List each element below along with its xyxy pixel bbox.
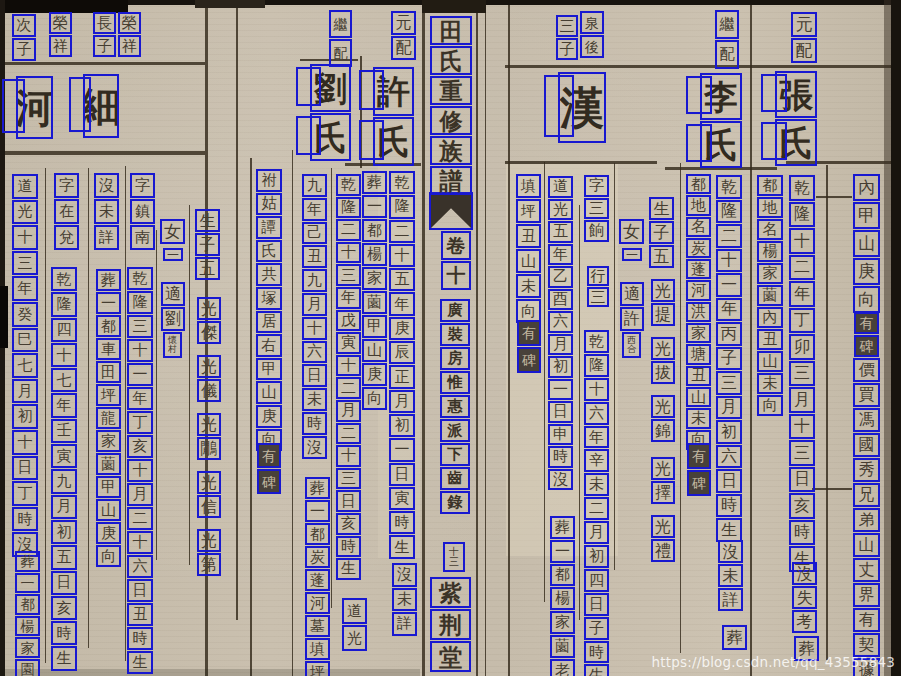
ocr-char-box: 填 xyxy=(305,638,330,660)
ocr-char-box: 初 xyxy=(548,356,573,378)
ocr-char-box: 十 xyxy=(716,249,742,273)
ocr-char-box: 十 xyxy=(127,531,153,554)
ocr-char-box: 惠 xyxy=(440,395,470,418)
ocr-column-han-name: 漢 xyxy=(558,72,606,143)
ocr-char-box: 長 xyxy=(93,12,116,34)
ocr-char-box: 沒 xyxy=(792,562,817,585)
ocr-char-box: 隆 xyxy=(716,200,742,224)
row-rule xyxy=(0,62,205,65)
ocr-char-box: 向 xyxy=(757,395,783,416)
ocr-char-box: 庚 xyxy=(256,405,282,428)
ocr-char-box: 在 xyxy=(54,199,79,224)
ocr-char-box: 光 xyxy=(342,625,367,651)
ocr-column-liu-birth: 乾隆二十三年戊寅十二月二十三日亥時生 xyxy=(336,174,361,580)
ocr-char-box: 寅 xyxy=(51,444,77,468)
ocr-char-box: 沒 xyxy=(548,469,573,491)
ocr-char-box: 月 xyxy=(336,400,361,422)
ocr-char-box: 右 xyxy=(256,334,282,357)
ocr-char-box: 年 xyxy=(584,426,609,449)
ocr-char-box: 十 xyxy=(302,317,327,340)
ocr-char-box: 塚 xyxy=(256,287,282,310)
ocr-char-box: 乾 xyxy=(51,267,77,291)
ocr-char-box: 光 xyxy=(197,297,221,320)
ocr-ghost-box xyxy=(359,120,384,160)
ocr-char-box: 子 xyxy=(195,233,220,256)
ocr-column-xi-courtesy: 字在兌 xyxy=(54,173,79,250)
ocr-char-box: 五 xyxy=(51,545,77,569)
ocr-char-box: 光 xyxy=(651,457,675,480)
ocr-char-box: 光 xyxy=(651,395,675,418)
ocr-column-han-courtesy: 字三餉 xyxy=(584,175,609,242)
ocr-char-box: 考 xyxy=(792,610,817,633)
ocr-column-sons-count-right: 生子五 xyxy=(649,197,674,268)
ocr-column-li-death: 沒未詳 xyxy=(718,540,743,611)
ocr-char-box: 日 xyxy=(336,490,361,512)
ocr-column-li-birth: 乾隆二十一年丙子三月初六日時生 xyxy=(716,175,742,542)
ocr-char-box: 庚 xyxy=(389,317,415,340)
ocr-char-box: 三 xyxy=(127,315,153,338)
ocr-char-box: 年 xyxy=(127,387,153,410)
ocr-char-box: 家 xyxy=(96,430,121,452)
ocr-char-box: 乾 xyxy=(584,330,609,353)
ocr-char-box: 二 xyxy=(716,224,742,248)
ocr-char-box: 楊 xyxy=(362,243,387,266)
ocr-char-box: 二 xyxy=(389,220,415,243)
ocr-char-box: 後 xyxy=(580,35,604,58)
ocr-char-box: 都 xyxy=(305,523,330,545)
ocr-char-box: 丁 xyxy=(127,411,153,434)
ocr-char-box: 辛 xyxy=(584,449,609,472)
ocr-column-daughter-left-married: 適劉 xyxy=(161,282,185,331)
ocr-char-box: 重 xyxy=(430,76,472,105)
ocr-char-box: 山 xyxy=(516,249,541,273)
ocr-column-han-tablet-note: 有碑 xyxy=(517,320,541,373)
ocr-char-box: 沒 xyxy=(718,540,743,563)
ocr-char-box: 子 xyxy=(584,617,609,640)
ocr-char-box: 詳 xyxy=(392,612,417,636)
row-rule xyxy=(812,488,852,490)
ocr-char-box: 戊 xyxy=(336,310,361,332)
ocr-char-box: 車 xyxy=(96,338,121,360)
ocr-char-box: 癸 xyxy=(12,302,38,327)
ocr-char-box: 傑 xyxy=(197,321,221,344)
ocr-char-box: 光 xyxy=(197,529,221,552)
ocr-char-box: 坪 xyxy=(96,384,121,406)
ocr-column-he-name: 河 xyxy=(16,76,53,139)
ocr-char-box: 向 xyxy=(362,387,387,410)
ocr-char-box: 六 xyxy=(302,341,327,364)
ocr-char-box: 月 xyxy=(302,293,327,316)
ocr-char-box: 一 xyxy=(127,363,153,386)
ocr-char-box: 庚 xyxy=(96,522,121,544)
ocr-column-han-order: 行三 xyxy=(587,266,609,307)
ocr-column-xi-name: 細 xyxy=(83,74,119,138)
ocr-char-box: 十 xyxy=(389,244,415,267)
column-rule xyxy=(125,166,126,661)
ocr-char-box: 碑 xyxy=(257,469,281,494)
ocr-char-box: 薗 xyxy=(96,453,121,475)
ocr-char-box: 光 xyxy=(12,200,38,225)
ocr-char-box: 光 xyxy=(197,471,221,494)
ocr-char-box: 三 xyxy=(587,287,609,307)
ocr-char-box: 申 xyxy=(548,424,573,446)
ocr-ghost-box xyxy=(544,75,574,137)
ocr-char-box: 行 xyxy=(587,266,609,286)
ocr-char-box: 時 xyxy=(548,446,573,468)
ocr-char-box: 祔 xyxy=(256,169,282,192)
ocr-char-box: 三 xyxy=(716,371,742,395)
column-rule xyxy=(292,150,293,676)
ocr-ghost-box xyxy=(2,79,25,133)
ocr-char-box: 龍 xyxy=(96,407,121,429)
ocr-char-box: 炭 xyxy=(305,546,330,568)
ocr-char-box: 十 xyxy=(789,228,815,254)
ocr-column-son-guangxin: 光信 xyxy=(197,471,221,518)
ocr-column-zhang-death: 沒失考 xyxy=(792,562,817,633)
ocr-char-box: 塘 xyxy=(686,344,711,364)
ocr-char-box: 餉 xyxy=(584,220,609,242)
ocr-column-daughter-right-married: 適許 xyxy=(620,282,644,331)
ocr-char-box: 鎮 xyxy=(130,199,155,224)
ocr-char-box: 向 xyxy=(853,286,880,313)
column-rule xyxy=(579,205,580,620)
ocr-char-box: 秀 xyxy=(853,458,880,482)
ocr-char-box: 劉 xyxy=(161,307,185,331)
ocr-char-box: 時 xyxy=(716,494,742,518)
ocr-char-box: 三 xyxy=(336,468,361,490)
ocr-ghost-box xyxy=(761,74,787,112)
ocr-column-xi-burial: 葬一都車田坪龍家薗甲山庚向 xyxy=(96,269,121,567)
ocr-char-box: 葬 xyxy=(305,477,330,499)
ocr-char-box: 隆 xyxy=(389,195,415,218)
ocr-ghost-box xyxy=(686,76,712,114)
ocr-column-daughter-left-husband: 懷村 xyxy=(163,332,182,358)
ocr-char-box: 月 xyxy=(12,379,38,404)
ocr-column-li-burial: 葬 xyxy=(722,625,747,650)
ocr-char-box: 二 xyxy=(336,423,361,445)
ocr-char-box: 時 xyxy=(127,627,153,650)
ocr-char-box: 有 xyxy=(853,608,880,632)
ocr-char-box: 家 xyxy=(362,267,387,290)
ocr-char-box: 隆 xyxy=(336,197,361,219)
ocr-char-box: 子 xyxy=(93,35,116,57)
ocr-char-box: 坪 xyxy=(305,661,330,676)
ocr-column-spine-folio: 十三 xyxy=(443,542,465,572)
ocr-char-box: 字 xyxy=(584,175,609,197)
ocr-column-liu-death: 九年己丑九月十六日未時沒 xyxy=(302,174,327,459)
ocr-char-box: 月 xyxy=(389,390,415,413)
ocr-column-liu-joint-grave: 祔姑譚氏共塚居右甲山庚向 xyxy=(256,169,282,451)
column-rule xyxy=(250,158,252,676)
ocr-char-box: 氏 xyxy=(430,46,472,75)
column-rule xyxy=(189,205,190,565)
column-rule xyxy=(485,0,486,676)
ocr-char-box: 巳 xyxy=(12,328,38,353)
ocr-char-box: 亥 xyxy=(789,493,815,519)
ocr-column-li-grave-site: 都地名炭蓬河洪家塘丑山未向 xyxy=(686,174,711,450)
ocr-char-box: 日 xyxy=(12,456,38,481)
ocr-column-son-guangli: 光禮 xyxy=(651,515,675,562)
ocr-char-box: 祥 xyxy=(118,35,141,57)
ocr-char-box: 日 xyxy=(127,579,153,602)
ocr-char-box: 譜 xyxy=(430,166,472,195)
ocr-char-box: 未 xyxy=(516,274,541,298)
ocr-char-box: 十 xyxy=(51,343,77,367)
row-rule xyxy=(505,65,893,68)
ocr-char-box: 適 xyxy=(161,282,185,306)
ocr-column-daughter-right-husband: 西合 xyxy=(622,332,641,358)
csdn-watermark: https://blog.csdn.net/qq_43555843 xyxy=(651,654,895,670)
scan-edge xyxy=(195,0,265,8)
ocr-char-box: 九 xyxy=(302,269,327,292)
ocr-char-box: 十 xyxy=(441,261,471,290)
ocr-column-son-guangze: 光擇 xyxy=(651,457,675,504)
ocr-column-han-father: 泉後 xyxy=(580,11,604,58)
ocr-column-ci-rank: 次子 xyxy=(12,14,36,61)
ocr-char-box: 有 xyxy=(257,443,281,468)
ocr-char-box: 泉 xyxy=(580,11,604,34)
ocr-char-box: 月 xyxy=(51,495,77,519)
ocr-char-box: 酉 xyxy=(548,289,573,311)
ocr-char-box: 國 xyxy=(853,433,880,457)
ocr-char-box: 甲 xyxy=(256,358,282,381)
ocr-char-box: 子 xyxy=(12,38,36,61)
column-rule xyxy=(614,163,615,570)
ocr-char-box: 修 xyxy=(430,106,472,135)
ocr-char-box: 繼 xyxy=(329,10,352,38)
column-rule xyxy=(45,168,46,663)
ocr-char-box: 亥 xyxy=(51,596,77,620)
ocr-char-box: 碑 xyxy=(854,335,879,357)
ocr-char-box: 坪 xyxy=(516,199,541,223)
ocr-char-box: 隆 xyxy=(127,291,153,314)
ocr-char-box: 廣 xyxy=(440,299,470,322)
ocr-column-liu-burial: 葬一都炭蓬河墓填坪 xyxy=(305,477,330,676)
ocr-column-spine-section: 廣裝房惟惠派下齒錄 xyxy=(440,299,470,514)
ocr-char-box: 田 xyxy=(96,361,121,383)
ocr-char-box: 價 xyxy=(853,358,880,382)
ocr-char-box: 三 xyxy=(584,198,609,220)
ocr-column-son-guangba: 光拔 xyxy=(651,337,675,384)
ocr-column-sons-count-left: 生子五 xyxy=(195,209,220,280)
ocr-char-box: 生 xyxy=(51,646,77,670)
ocr-char-box: 都 xyxy=(550,564,575,587)
ocr-char-box: 甲 xyxy=(853,202,880,229)
ocr-char-box: 隆 xyxy=(51,292,77,316)
ocr-char-box: 六 xyxy=(716,445,742,469)
ocr-char-box: 九 xyxy=(302,174,327,197)
ocr-char-box: 沒 xyxy=(392,563,417,587)
ocr-char-box: 齒 xyxy=(440,467,470,490)
ocr-char-box: 配 xyxy=(391,36,416,60)
row-rule xyxy=(505,161,657,164)
ocr-char-box: 日 xyxy=(548,401,573,423)
ocr-char-box: 十 xyxy=(789,414,815,440)
column-rule xyxy=(508,0,510,676)
ocr-column-daughter-right-one: 一 xyxy=(622,248,642,261)
ocr-char-box: 五 xyxy=(548,221,573,243)
scan-edge xyxy=(0,286,8,348)
scan-edge xyxy=(422,0,486,13)
scan-edge xyxy=(891,0,901,676)
ocr-char-box: 族 xyxy=(430,136,472,165)
ocr-char-box: 都 xyxy=(757,175,783,196)
ocr-char-box: 甲 xyxy=(96,476,121,498)
ocr-char-box: 地 xyxy=(686,195,711,215)
ocr-column-he-death: 道光十三年癸巳七月初十日丁時沒 xyxy=(12,174,38,557)
ocr-char-box: 紫 xyxy=(430,577,471,608)
ocr-column-li-name: 李氏 xyxy=(700,73,742,168)
ocr-char-box: 日 xyxy=(51,571,77,595)
ocr-char-box: 繼 xyxy=(715,10,739,39)
ocr-char-box: 日 xyxy=(584,593,609,616)
ocr-column-zhang-name: 張氏 xyxy=(775,71,817,166)
ocr-char-box: 沒 xyxy=(302,436,327,459)
ocr-char-box: 碑 xyxy=(517,347,541,373)
ocr-char-box: 山 xyxy=(362,339,387,362)
ocr-char-box: 買 xyxy=(853,383,880,407)
ocr-char-box: 薗 xyxy=(362,291,387,314)
ocr-column-daughter-right: 女 xyxy=(619,219,644,244)
ocr-char-box: 都 xyxy=(96,315,121,337)
ocr-column-spine-title: 田氏重修族譜 xyxy=(430,16,472,195)
ocr-column-han-birth: 乾隆十六年辛未二月初四日子時生 xyxy=(584,330,609,676)
ocr-char-box: 惟 xyxy=(440,371,470,394)
column-rule xyxy=(544,162,545,602)
ocr-char-box: 譚 xyxy=(256,216,282,239)
ocr-char-box: 二 xyxy=(336,219,361,241)
ocr-char-box: 墓 xyxy=(305,615,330,637)
ocr-char-box: 六 xyxy=(548,311,573,333)
ocr-char-box: 四 xyxy=(584,569,609,592)
ocr-char-box: 提 xyxy=(651,303,675,326)
ocr-char-box: 道 xyxy=(12,174,38,199)
ocr-char-box: 元 xyxy=(391,11,416,35)
ocr-char-box: 配 xyxy=(791,38,817,63)
ocr-char-box: 一 xyxy=(389,438,415,461)
ocr-char-box: 氏 xyxy=(256,240,282,263)
ocr-char-box: 卯 xyxy=(789,334,815,360)
ocr-column-right-margin-tablet-note: 有碑 xyxy=(854,312,879,357)
ocr-char-box: 十 xyxy=(12,225,38,250)
ocr-char-box: 時 xyxy=(302,412,327,435)
ocr-column-xu-death: 沒未詳 xyxy=(392,563,417,636)
ocr-char-box: 年 xyxy=(548,244,573,266)
ocr-char-box: 六 xyxy=(127,555,153,578)
ocr-column-son-guangjie: 光傑 xyxy=(197,297,221,344)
ocr-char-box: 下 xyxy=(440,443,470,466)
ocr-char-box: 生 xyxy=(336,558,361,580)
ocr-column-li-tablet-note: 有碑 xyxy=(687,443,711,496)
ocr-char-box: 丙 xyxy=(716,322,742,346)
ocr-char-box: 一 xyxy=(15,573,40,594)
ocr-char-box: 沒 xyxy=(94,173,119,198)
ocr-char-box: 配 xyxy=(329,39,352,67)
ocr-column-chang-father: 榮祥 xyxy=(118,12,141,57)
ocr-char-box: 時 xyxy=(336,536,361,558)
ocr-char-box: 一 xyxy=(716,273,742,297)
ocr-char-box: 配 xyxy=(715,40,739,69)
ocr-char-box: 楊 xyxy=(15,616,40,637)
ocr-column-right-margin-geomancy: 內甲山庚向 xyxy=(853,174,880,313)
ocr-char-box: 時 xyxy=(789,520,815,546)
ocr-char-box: 亥 xyxy=(127,435,153,458)
ocr-char-box: 十 xyxy=(12,430,38,455)
ocr-char-box: 年 xyxy=(302,198,327,221)
ocr-char-box: 字 xyxy=(54,173,79,198)
ocr-char-box: 園 xyxy=(15,659,40,676)
ocr-char-box: 丑 xyxy=(516,224,541,248)
ocr-char-box: 一 xyxy=(96,292,121,314)
ocr-char-box: 家 xyxy=(15,637,40,658)
ocr-char-box: 乾 xyxy=(336,174,361,196)
ocr-ghost-box xyxy=(296,116,321,155)
ocr-char-box: 拔 xyxy=(651,361,675,384)
ocr-char-box: 初 xyxy=(716,420,742,444)
ocr-char-box: 生 xyxy=(195,209,220,232)
ocr-char-box: 十三 xyxy=(443,542,465,572)
ocr-char-box: 十 xyxy=(584,378,609,401)
ocr-char-box: 丑 xyxy=(127,603,153,626)
ocr-char-box: 內 xyxy=(757,307,783,328)
ocr-char-box: 有 xyxy=(854,312,879,334)
ocr-column-xu-burial: 葬一都楊家薗甲山庚向 xyxy=(362,171,387,410)
ocr-char-box: 乙 xyxy=(548,266,573,288)
column-rule xyxy=(422,0,425,676)
ocr-ghost-box xyxy=(69,77,91,132)
ocr-char-box: 楊 xyxy=(550,587,575,610)
ocr-char-box: 月 xyxy=(789,387,815,413)
ocr-char-box: 亥 xyxy=(336,513,361,535)
ocr-char-box: 薗 xyxy=(757,285,783,306)
ocr-char-box: 生 xyxy=(716,518,742,542)
ocr-char-box: 日 xyxy=(789,467,815,493)
ocr-char-box: 女 xyxy=(619,219,644,244)
ocr-char-box: 蓬 xyxy=(686,259,711,279)
ocr-char-box: 裝 xyxy=(440,323,470,346)
ocr-char-box: 未 xyxy=(302,388,327,411)
ocr-char-box: 名 xyxy=(686,217,711,237)
ocr-char-box: 地 xyxy=(757,197,783,218)
ocr-char-box: 西合 xyxy=(622,332,641,358)
ocr-char-box: 炭 xyxy=(686,238,711,258)
ocr-char-box: 懷村 xyxy=(163,332,182,358)
ocr-char-box: 隆 xyxy=(789,202,815,228)
ocr-char-box: 四 xyxy=(51,318,77,342)
ocr-char-box: 祥 xyxy=(49,35,72,57)
ocr-column-xi-birth: 乾隆四十七年壬寅九月初五日亥時生 xyxy=(51,267,77,671)
ocr-char-box: 隆 xyxy=(584,354,609,377)
ocr-char-box: 生 xyxy=(584,664,609,676)
ocr-column-zhang-grave-site: 都地名楊家薗內丑山未向 xyxy=(757,175,783,416)
ocr-char-box: 家 xyxy=(686,323,711,343)
ocr-char-box: 一 xyxy=(622,248,642,261)
ocr-char-box: 一 xyxy=(550,540,575,563)
ocr-char-box: 界 xyxy=(853,583,880,607)
ocr-char-box: 月 xyxy=(584,521,609,544)
ocr-char-box: 女 xyxy=(160,219,185,244)
ocr-ghost-box xyxy=(686,124,712,162)
ocr-char-box: 山 xyxy=(96,499,121,521)
ocr-char-box: 葬 xyxy=(96,269,121,291)
ocr-char-box: 道 xyxy=(548,176,573,198)
ocr-char-box: 丑 xyxy=(757,329,783,350)
ocr-char-box: 辰 xyxy=(389,341,415,364)
ocr-char-box: 未 xyxy=(757,373,783,394)
ocr-char-box: 河 xyxy=(305,592,330,614)
ocr-char-box: 蓬 xyxy=(305,569,330,591)
ocr-char-box: 寅 xyxy=(389,487,415,510)
